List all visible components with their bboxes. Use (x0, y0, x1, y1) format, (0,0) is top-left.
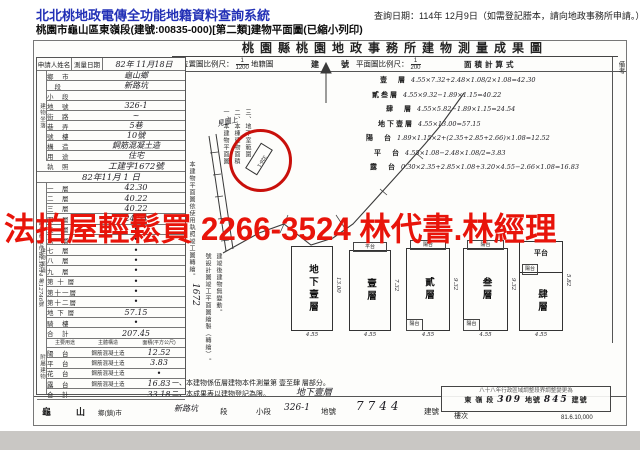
stamp-parcel: 309 (497, 395, 522, 405)
stamp-parcel-label: 地號 (525, 397, 541, 404)
floor-label: 壹層 (350, 251, 390, 330)
floor-plan-box: 壹層平台4.557.32 (349, 250, 391, 331)
resection-stamp: 八十八年行政區域調整段界調整變更為 東 嶺 段 309 地號 845 建號 (441, 386, 611, 412)
floor-label: 貳層 (407, 249, 449, 330)
floor-width-dim: 4.55 (350, 332, 390, 338)
floor-plan-box: 貳層陽台陽台4.559.32 (406, 248, 450, 331)
floor-label: 肆層 (520, 272, 562, 330)
stamp-line1: 八十八年行政區域調整段界調整變更為 (442, 387, 610, 395)
stamp-line2: 東 嶺 段 309 地號 845 建號 (442, 395, 610, 405)
balcony-tag: 陽台 (463, 319, 480, 331)
document-subtitle: 桃園市龜山區東嶺段(建號:00835-000)[第二類]建物平面圖(已縮小列印) (36, 22, 363, 37)
floor-plan-box: 平台陽台肆層4.555.82 (519, 241, 563, 331)
floor-height-dim: 9.32 (510, 278, 516, 290)
floor-plan-box: 叁層陽台陽台4.559.32 (463, 248, 508, 331)
floor-width-dim: 4.55 (407, 332, 449, 338)
stamp-section: 東 嶺 段 (464, 397, 494, 404)
page-end-band (0, 431, 640, 450)
query-result-page: 北北桃地政電傳全功能地籍資料查詢系統 查詢日期：114年 12月9日（如需登記謄… (0, 0, 640, 450)
floor-width-dim: 4.55 (292, 332, 332, 338)
floor-plan-box: 地下壹層4.5513.00 (291, 246, 333, 331)
floor-label: 地下壹層 (292, 247, 332, 330)
floor-height-dim: 13.00 (335, 277, 341, 293)
stamp-bno-label: 建號 (572, 397, 588, 404)
floor-label: 叁層 (464, 249, 507, 330)
highlight-circle: 326-1 (229, 129, 292, 192)
stamp-bno: 845 (544, 395, 569, 405)
floor-width-dim: 4.55 (520, 332, 562, 338)
highlighted-parcel: 326-1 (245, 143, 273, 176)
query-date-text: 查詢日期：114年 12月9日（如需登記謄本，請向地政事務所申請。） (374, 9, 640, 22)
floor-height-dim: 5.82 (565, 274, 571, 286)
floor-width-dim: 4.55 (464, 332, 507, 338)
balcony-tag: 陽台 (406, 319, 423, 331)
ad-watermark: 法拍屋輕鬆買 2266-3524 林代書.林經理 (4, 204, 627, 250)
floor-height-dim: 9.32 (452, 278, 458, 290)
floor-height-dim: 7.32 (393, 279, 399, 291)
